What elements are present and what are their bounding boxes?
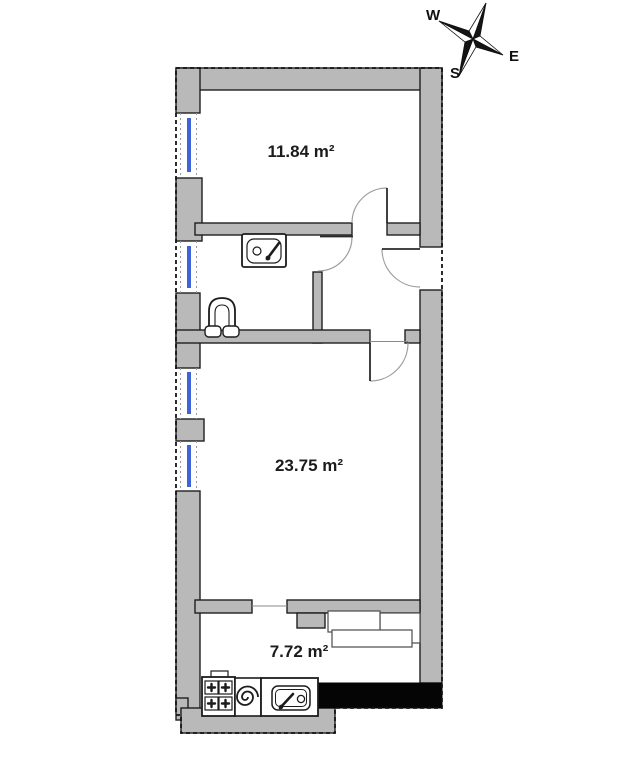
- counter-mid: [332, 630, 412, 647]
- door-arc-room-top: [352, 188, 387, 223]
- wall-kitchen-top-left: [195, 600, 252, 613]
- door-arc-entrance: [382, 249, 420, 287]
- wall-top: [176, 68, 442, 90]
- kitchen-counters: [328, 611, 420, 647]
- door-arc-bathroom: [318, 237, 352, 271]
- window-2: [187, 246, 191, 288]
- bathroom-sink-icon: [242, 234, 286, 267]
- room-top-area-label: 11.84 m²: [267, 142, 334, 162]
- wall-right-upper: [420, 68, 442, 247]
- wall-left-1: [176, 68, 200, 113]
- floor-plan-page: 11.84 m² 23.75 m² 7.72 m² W E S N: [0, 0, 630, 757]
- counter-top: [328, 611, 380, 632]
- compass-rose-icon: [439, 3, 503, 76]
- wall-black-section: [315, 683, 442, 708]
- room-kitchen-area-label: 7.72 m²: [270, 642, 329, 662]
- wall-right-lower: [420, 290, 442, 683]
- kitchen-sink-icon: [261, 678, 318, 716]
- compass-north-label: N: [479, 0, 490, 4]
- compass-south-label: S: [450, 65, 460, 82]
- wall-left-pier: [176, 419, 204, 441]
- wall-kitchen-notch: [297, 613, 325, 628]
- window-1: [187, 118, 191, 172]
- window-4: [187, 445, 191, 487]
- compass-west-label: W: [426, 7, 440, 24]
- wall-room-top-bottom-right: [387, 223, 420, 235]
- room-main-area-label: 23.75 m²: [275, 456, 343, 476]
- water-heater-coil-icon: [235, 678, 261, 716]
- stove-icon: [202, 671, 235, 716]
- window-3: [187, 372, 191, 414]
- compass-east-label: E: [509, 48, 519, 65]
- door-arc-main-room: [370, 343, 408, 381]
